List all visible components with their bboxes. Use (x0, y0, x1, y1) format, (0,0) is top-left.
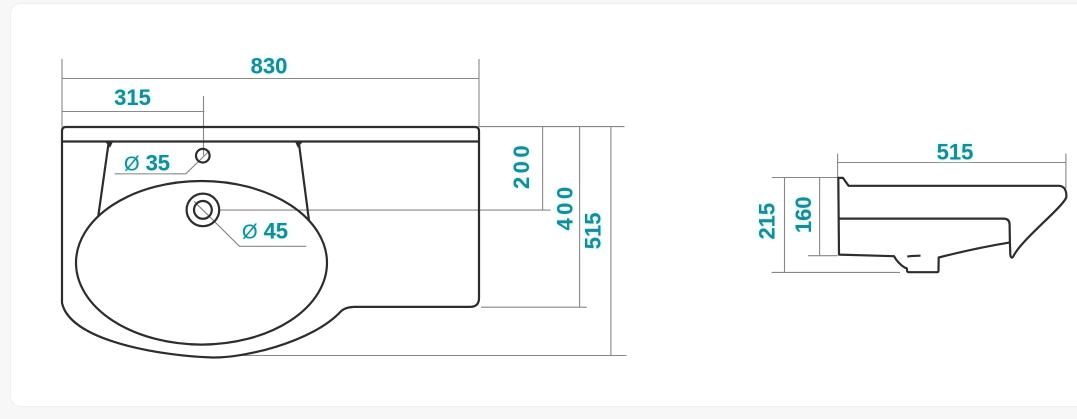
svg-text:515: 515 (937, 140, 974, 165)
svg-text:315: 315 (114, 85, 151, 110)
svg-text:515: 515 (581, 213, 606, 250)
svg-text:Ø35: Ø35 (124, 150, 170, 175)
svg-text:160: 160 (791, 196, 816, 233)
svg-text:830: 830 (251, 54, 288, 79)
svg-text:200: 200 (509, 142, 534, 189)
svg-text:215: 215 (755, 203, 780, 240)
svg-text:400: 400 (553, 183, 578, 230)
svg-text:Ø45: Ø45 (242, 219, 288, 244)
